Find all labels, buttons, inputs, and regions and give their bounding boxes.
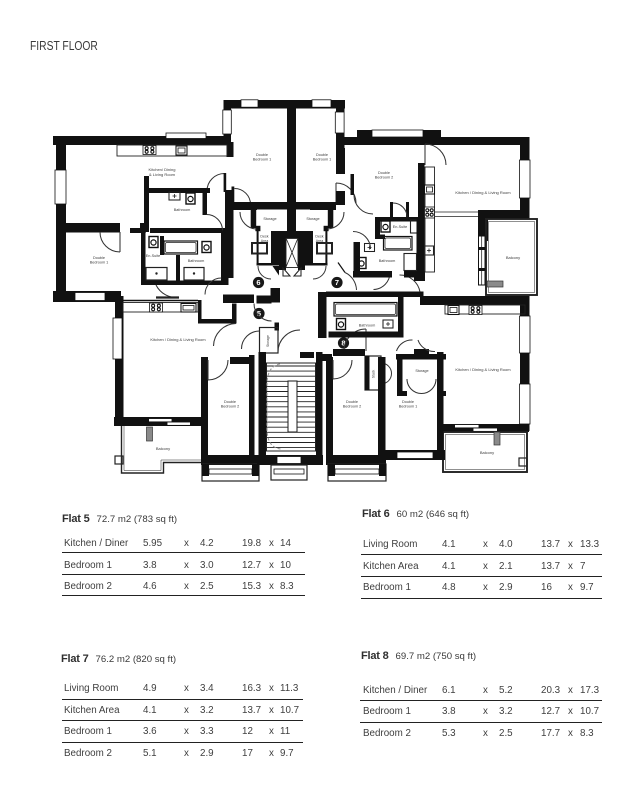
svg-text:DoubleBedroom 1: DoubleBedroom 1 bbox=[399, 400, 418, 409]
svg-text:7: 7 bbox=[335, 278, 339, 287]
svg-text:En-Suite: En-Suite bbox=[393, 225, 408, 229]
svg-text:Storage: Storage bbox=[266, 335, 270, 347]
svg-text:Storage: Storage bbox=[415, 369, 428, 373]
svg-text:Kitchen/ Dining& Living Room: Kitchen/ Dining& Living Room bbox=[149, 167, 176, 177]
svg-text:DoubleBedroom 1: DoubleBedroom 1 bbox=[313, 153, 332, 162]
svg-text:DeskArea: DeskArea bbox=[260, 235, 268, 244]
svg-text:6: 6 bbox=[256, 278, 260, 287]
svg-text:Bathroom: Bathroom bbox=[188, 259, 204, 263]
svg-text:DoubleBedroom 2: DoubleBedroom 2 bbox=[221, 400, 240, 409]
svg-text:Balcony: Balcony bbox=[480, 450, 494, 455]
svg-text:Stack: Stack bbox=[372, 369, 376, 378]
svg-text:Bathroom: Bathroom bbox=[174, 208, 190, 212]
svg-text:DoubleBedroom 2: DoubleBedroom 2 bbox=[343, 400, 362, 409]
svg-text:Kitchen / Dining & Living Room: Kitchen / Dining & Living Room bbox=[455, 190, 511, 195]
svg-text:Balcony: Balcony bbox=[156, 446, 170, 451]
svg-text:Bathroom: Bathroom bbox=[379, 259, 395, 263]
svg-text:DoubleBedroom 2: DoubleBedroom 2 bbox=[375, 171, 394, 180]
svg-text:DoubleBedroom 1: DoubleBedroom 1 bbox=[90, 256, 109, 265]
svg-text:Kitchen / Dining & Living Room: Kitchen / Dining & Living Room bbox=[455, 367, 511, 372]
svg-text:DoubleBedroom 1: DoubleBedroom 1 bbox=[253, 153, 272, 162]
svg-text:Storage: Storage bbox=[263, 217, 276, 221]
svg-text:Storage: Storage bbox=[306, 217, 319, 221]
svg-text:En-Suite: En-Suite bbox=[146, 254, 161, 258]
svg-text:Bathroom: Bathroom bbox=[359, 324, 375, 328]
svg-text:Balcony: Balcony bbox=[506, 255, 520, 260]
svg-text:DeskArea: DeskArea bbox=[315, 235, 323, 244]
svg-text:Kitchen / Dining & Living Room: Kitchen / Dining & Living Room bbox=[150, 337, 206, 342]
